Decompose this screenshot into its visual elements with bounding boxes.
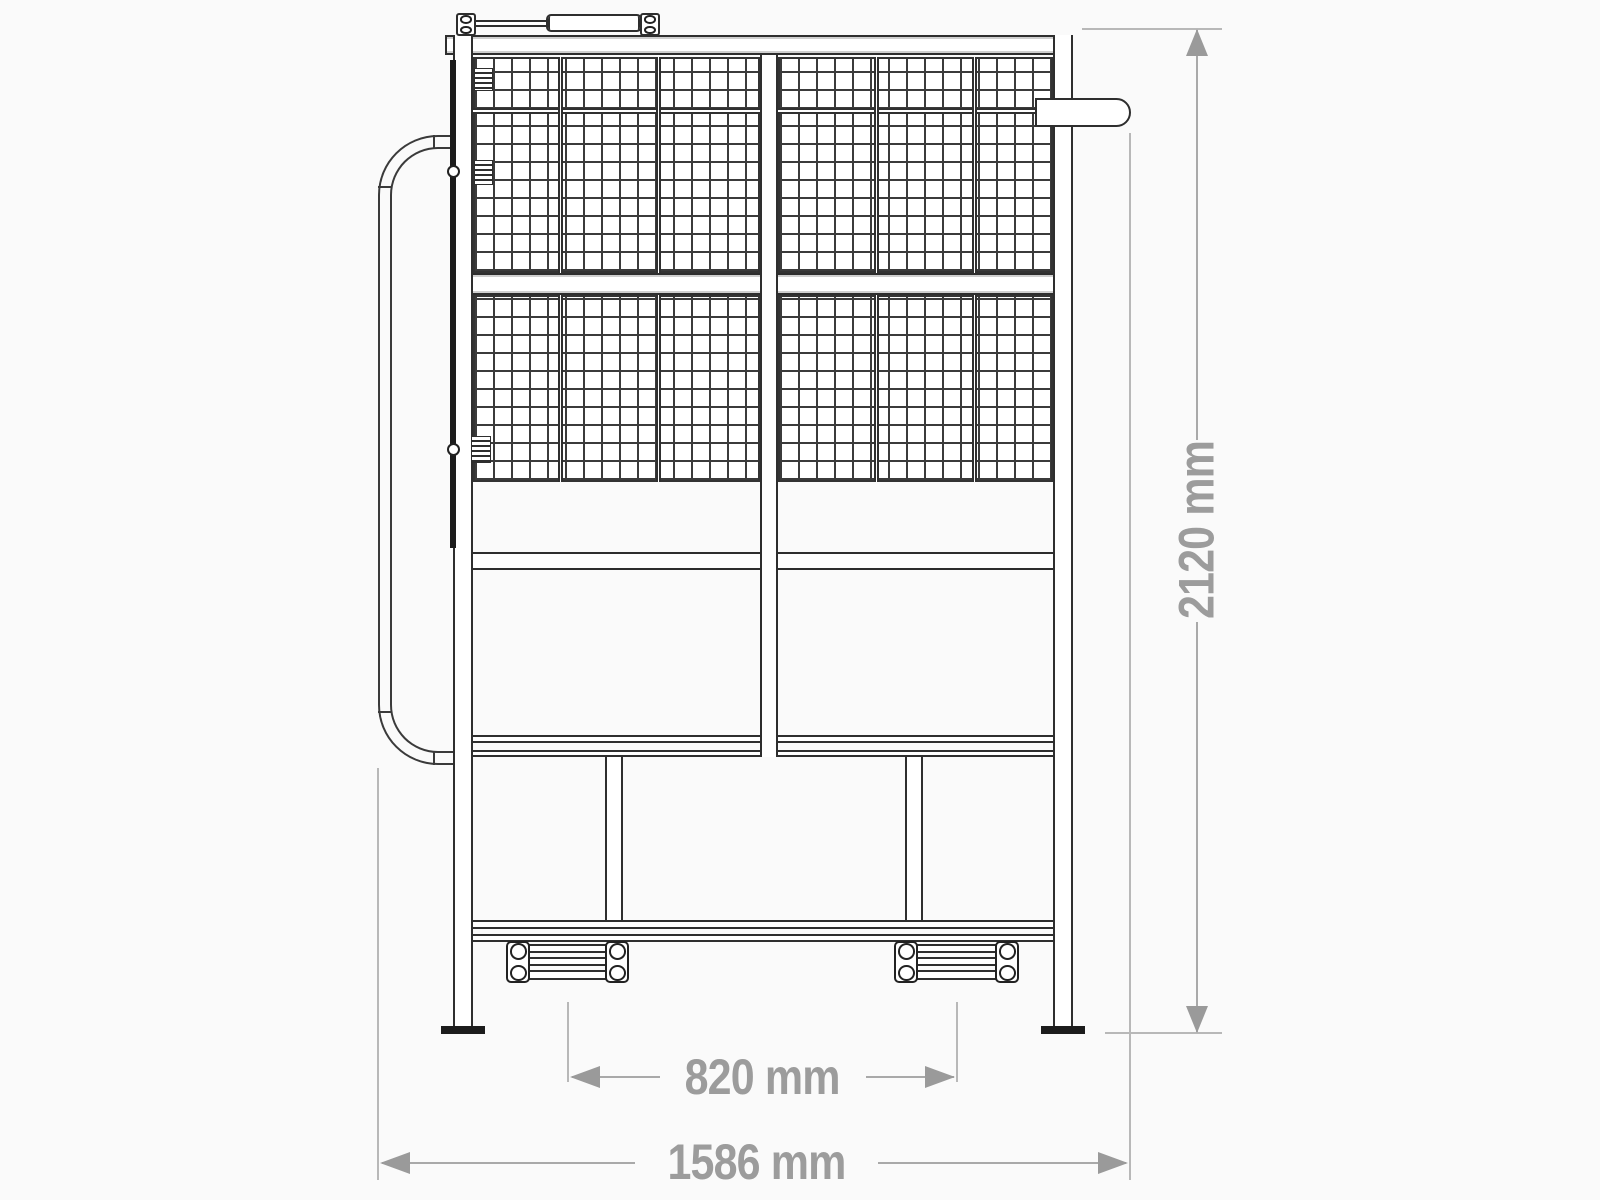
mesh-stiffener [656, 295, 661, 482]
loop-weld-seam [378, 186, 392, 188]
bolt-icon [644, 15, 656, 24]
cage-bottom-rail-b [453, 934, 1073, 942]
gas-strut-rod [474, 20, 548, 27]
bolt-icon [644, 26, 656, 35]
bolt-icon [609, 943, 626, 960]
cage-center-post [760, 55, 778, 757]
right-foot-plate [1041, 1026, 1085, 1034]
arrow-up-icon [1186, 29, 1208, 56]
technical-drawing-canvas: 2120 mm 820 mm 1586 mm [0, 0, 1600, 1200]
arrow-left-icon [570, 1066, 600, 1088]
width-dim-label: 1586 mm [607, 1132, 907, 1192]
mesh-panel-lower-right [778, 295, 1053, 482]
bolt-icon [460, 15, 472, 24]
bracket-plate [506, 941, 530, 983]
bolt-icon [510, 965, 527, 982]
mesh-panel-upper-right [778, 57, 1053, 273]
hinge-block-lower [471, 436, 491, 463]
loop-weld-seam [433, 135, 435, 149]
mesh-stiffener [874, 57, 879, 273]
mesh-stiffener [558, 57, 563, 273]
bracket-bar [528, 944, 607, 953]
mesh-stiffener [874, 295, 879, 482]
cage-left-post-leg [453, 35, 473, 1027]
width-dim-line-right [878, 1162, 1126, 1164]
gas-strut-left-mount [456, 13, 476, 36]
mesh-stiffener [656, 57, 661, 273]
bolt-icon [999, 943, 1016, 960]
loop-weld-seam [378, 711, 392, 713]
hinge-bolt [447, 443, 460, 456]
gate-hinge-strip [450, 60, 456, 548]
bracket-bar [528, 957, 607, 966]
spacing-extension-line-right [956, 1002, 958, 1082]
hinge-bolt [447, 165, 460, 178]
hinge-block-top [474, 68, 493, 91]
mesh-stiffener [972, 295, 977, 482]
bolt-icon [460, 26, 472, 35]
mesh-heavy-wire [778, 108, 1053, 114]
cage-top-rail [445, 35, 1073, 55]
arrow-left-icon [380, 1152, 410, 1174]
bolt-icon [898, 965, 915, 982]
width-dim-line-left [382, 1162, 635, 1164]
bracket-bar [916, 944, 997, 953]
cage-right-post-leg [1053, 35, 1073, 1027]
spacing-extension-line-left [567, 1002, 569, 1082]
bracket-bar [528, 970, 607, 980]
bracket-bar [916, 970, 997, 980]
height-dim-label: 2120 mm [1162, 330, 1232, 730]
mesh-stiffener [558, 295, 563, 482]
right-grab-handle [1035, 98, 1131, 127]
spacing-dim-text: 820 mm [684, 1048, 839, 1106]
width-extension-line-right [1129, 133, 1131, 1180]
bracket-plate [995, 941, 1019, 983]
left-foot-plate [441, 1026, 485, 1034]
lower-inner-post-right [905, 757, 923, 920]
hinge-block-upper [474, 160, 493, 185]
mesh-panel-upper-left [473, 57, 760, 273]
bracket-bar [916, 957, 997, 966]
lower-inner-post-left [605, 757, 623, 920]
bracket-plate [605, 941, 629, 983]
mesh-heavy-wire [473, 108, 760, 114]
bracket-plate [894, 941, 918, 983]
gas-strut-cylinder [546, 14, 642, 32]
bolt-icon [898, 943, 915, 960]
width-dim-text: 1586 mm [668, 1133, 846, 1191]
cage-bottom-rail-a [453, 920, 1073, 929]
height-dim-text: 2120 mm [1168, 441, 1226, 619]
mesh-panel-lower-left [473, 295, 760, 482]
arrow-right-icon [925, 1066, 955, 1088]
gas-strut-right-mount [640, 13, 660, 36]
bolt-icon [999, 965, 1016, 982]
bolt-icon [609, 965, 626, 982]
spacing-dim-label: 820 mm [612, 1047, 912, 1107]
loop-weld-seam [433, 751, 435, 765]
mesh-stiffener [972, 57, 977, 273]
bolt-icon [510, 943, 527, 960]
arrow-right-icon [1098, 1152, 1128, 1174]
arrow-down-icon [1186, 1006, 1208, 1033]
width-extension-line-left [377, 768, 379, 1180]
